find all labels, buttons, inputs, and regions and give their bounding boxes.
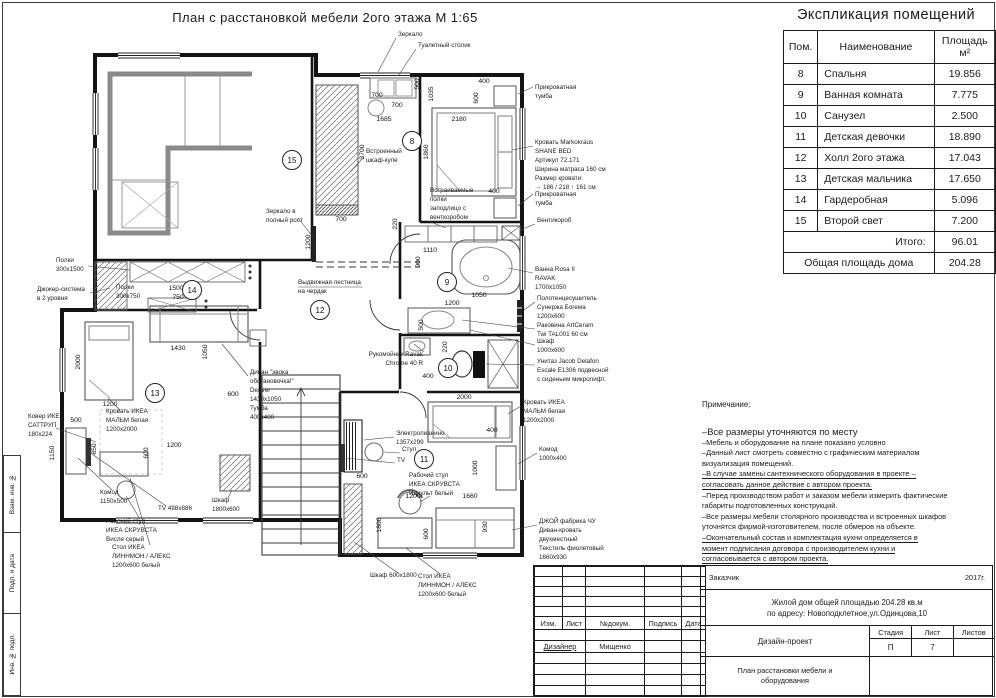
room15-sofa (110, 74, 252, 233)
object-description: Жилой дом общей площадью 204.28 кв.м по … (701, 590, 993, 626)
dimension-label: 700 (371, 92, 383, 99)
plan-label: Кровать ИКЕАМАЛЬМ белая1200x2000 (106, 408, 149, 433)
dimension-label: 400 (488, 188, 500, 195)
dimension-label: 1050 (202, 344, 209, 359)
dimension-label: 220 (442, 341, 449, 353)
void-balustrade (316, 262, 420, 267)
document-title: План расстановки мебели и оборудования (701, 657, 869, 695)
dimension-label: 900 (415, 256, 422, 268)
dimension-label: 700 (391, 102, 403, 109)
room-area: 18.890 (934, 127, 995, 148)
room-circle-number: 14 (188, 286, 197, 295)
room-area: 2.500 (934, 106, 995, 127)
plan-label: Комод1000x400 (539, 446, 567, 462)
girls-dresser (496, 446, 516, 490)
room-number-circles: 89101112131415 (146, 132, 458, 469)
title-block-right: Заказчик 2017г. Жилой дом общей площадью… (700, 566, 993, 695)
dimension-label: 400 (478, 78, 490, 85)
dimension-label: 1110 (423, 247, 437, 254)
plan-label: TV 498x886 (158, 505, 192, 512)
notes-block: Примечание: –Все размеры уточняются по м… (702, 400, 992, 565)
total-label: Общая площадь дома (784, 253, 935, 274)
strip-podp: Подп. и дата (3, 532, 21, 614)
plan-label: Шкаф1000x600 (537, 338, 565, 354)
room-area: 7.200 (934, 211, 995, 232)
dimension-label: 1200 (305, 234, 312, 249)
plan-label: Прикроватнаятумба (535, 191, 576, 207)
note-line: уточнятся фирмой-изготовителем, после об… (702, 522, 992, 533)
room-number: 15 (784, 211, 818, 232)
note-line: визуализация помещений. (702, 459, 992, 470)
subtotal-row: Итого:96.01 (784, 232, 996, 253)
room-circle-number: 11 (420, 455, 429, 464)
table-row: 15Второй свет7.200 (784, 211, 996, 232)
table-row: 14Гардеробная5.096 (784, 190, 996, 211)
table-row: 13Детская мальчика17.650 (784, 169, 996, 190)
plan-label: Комод1150x500 (100, 489, 128, 505)
plan-label: Зеркало вполный рост (266, 208, 303, 224)
room-circle-number: 9 (445, 278, 450, 287)
dimension-label: 3700 (359, 144, 366, 159)
dimension-label: 600 (423, 528, 430, 540)
left-margin-strip: Взам. инв. № Подп. и дата Инв. № подл. (3, 455, 21, 696)
room-name: Спальня (818, 64, 934, 85)
room-number: 13 (784, 169, 818, 190)
notes-heading: Примечание: (702, 400, 992, 411)
subtotal-label: Итого: (784, 232, 935, 253)
room-number: 8 (784, 64, 818, 85)
room-number: 12 (784, 148, 818, 169)
room-name: Санузел (818, 106, 934, 127)
plan-label: Встроенныйшкаф-купе (366, 147, 402, 164)
girls-wardrobe (344, 484, 362, 554)
dimension-label: 2000 (75, 354, 82, 369)
table-row: 8Спальня19.856 (784, 64, 996, 85)
piano-stool (365, 443, 383, 461)
plan-label: Раковина ArtCeramTwi TAL001 60 см (537, 322, 593, 338)
dimension-label: 600 (356, 473, 368, 480)
note-line: –Перед производством работ и заказом меб… (702, 491, 992, 502)
dimension-label: 500 (70, 417, 82, 424)
rail-dots (205, 265, 252, 309)
leader-line (364, 437, 394, 440)
table-row: 10Санузел2.500 (784, 106, 996, 127)
plan-label: Туалетный столик (418, 41, 471, 49)
note-line: согласовывается с автором проекта. (702, 554, 992, 565)
built-in-wardrobe (316, 85, 358, 215)
room-number: 9 (784, 85, 818, 106)
dimension-label: 1035 (428, 86, 435, 101)
project-type: Дизайн-проект (701, 626, 869, 657)
dimension-label: 930 (482, 521, 489, 533)
plan-label: Кровать MarkokrausSHANE BEDАртикул 72.17… (535, 139, 606, 191)
legend-header-row: Пом. Наименование Площадь м² (784, 31, 996, 64)
plan-label: Кровать ИКЕАМАЛЬМ белая1200x2000 (523, 399, 566, 424)
room-circle-number: 13 (151, 389, 160, 398)
room-circle-number: 15 (288, 156, 297, 165)
full-height-mirror (312, 226, 316, 262)
room-circle-number: 10 (444, 364, 453, 373)
dimension-label: 1860 (423, 144, 430, 159)
dimension-label: 1430 (170, 345, 185, 352)
room-circle-number: 8 (410, 137, 415, 146)
sheets-value (953, 639, 994, 657)
dimension-label: 220 (392, 218, 399, 230)
designer-name: Мищенко (586, 641, 645, 653)
boys-desk (100, 452, 148, 476)
leader-line (354, 542, 398, 573)
note-line: –Окончательный состав и комплектация кух… (702, 533, 992, 544)
room-number: 10 (784, 106, 818, 127)
leader-line (406, 548, 440, 574)
plan-label: Зеркало (398, 31, 423, 38)
plan-label: Ванна Rosa IIRAVAK1700x1050 (535, 266, 575, 291)
plan-label: ПолотенцесушительСунержа Богема1200x600 (537, 295, 597, 320)
dimension-label: 400 (486, 427, 498, 434)
vent-duct (502, 226, 520, 240)
room-area: 17.043 (934, 148, 995, 169)
room-legend-table: Пом. Наименование Площадь м² 8Спальня19.… (783, 30, 996, 274)
table-row: 9Ванная комната7.775 (784, 85, 996, 106)
leader-line (126, 496, 140, 519)
leader-line (222, 344, 248, 376)
leader-line (512, 525, 537, 530)
plan-label: Стол ИКЕАЛИННМОН / АЛЕКС1200x600 белый (418, 573, 477, 598)
note-line: –В случае замены сантехнического оборудо… (702, 469, 992, 480)
dimension-label: 500 (418, 319, 425, 331)
dimension-label: 1150 (49, 445, 56, 460)
boys-wardrobe (220, 455, 250, 491)
plan-label: Вентикороб (537, 216, 572, 224)
plan-label: Стул (402, 446, 417, 453)
table-row: 12Холл 2ого этажа17.043 (784, 148, 996, 169)
leader-line (486, 364, 535, 365)
wall-tv (341, 444, 345, 472)
leader-line (384, 452, 400, 453)
dimension-label: 1660 (462, 493, 477, 500)
col-podpis: Подпись (645, 617, 682, 630)
plan-label: ДЖОЙ фабрика ЧУДиван-кроватьдвухместныйТ… (539, 516, 604, 561)
sheet-header: Лист (911, 626, 952, 639)
stage-sheet-table: Стадия Лист Листов П 7 (869, 626, 993, 695)
dimension-label: 850 (91, 443, 98, 455)
plan-label: Шкаф1800x600 (212, 497, 240, 513)
doc-line2: оборудования (761, 676, 809, 686)
dimension-label: 1200 (444, 300, 459, 307)
leader-line (470, 330, 535, 345)
dimension-label: 1500 (168, 285, 183, 292)
leader-line (524, 302, 535, 310)
leader-line (462, 320, 535, 329)
project-cell: Дизайн-проект План расстановки мебели и … (701, 626, 869, 695)
sofa-bed (436, 508, 514, 548)
plan-label: Рукомойник RavakChrome 40 R (369, 350, 424, 367)
total-row: Общая площадь дома204.28 (784, 253, 996, 274)
dimension-label: 500 (414, 78, 421, 90)
drawing-sheet: План с расстановкой мебели 2ого этажа М … (0, 0, 996, 698)
room-area: 17.650 (934, 169, 995, 190)
designer-role: Дизайнер (535, 641, 586, 653)
leader-line (398, 49, 416, 76)
room-name: Детская девочки (818, 127, 934, 148)
dimension-label: 600 (143, 447, 150, 459)
dimension-label: 750 (172, 294, 184, 301)
sheet-value: 7 (911, 639, 952, 657)
boys-bed (85, 322, 133, 400)
note-line: –Мебель и оборудование на плане показано… (702, 438, 992, 449)
note-line: момент подписания договора с производите… (702, 544, 992, 555)
plan-label: Стол ИКЕАЛИННМОН / АЛЕКС1200x600 белый (112, 544, 171, 569)
plan-label: Встраиваемыеполкизаподлицо свенткоробом (430, 187, 474, 221)
year: 2017г. (965, 573, 985, 582)
plan-label: Унитаз Jacob DelafonEscale E1306 подвесн… (537, 358, 609, 383)
plan-label: Полки300x1500 (56, 257, 84, 273)
dimension-label: 1800 (376, 517, 383, 532)
plan-label: Джокер-системав 2 уровня (37, 286, 85, 302)
subtotal-value: 96.01 (934, 232, 995, 253)
strip-inv: Инв. № подл. (3, 613, 21, 696)
col-list: Лист (563, 617, 586, 630)
room-circle-number: 12 (316, 306, 325, 315)
bedroom-bed (432, 108, 516, 196)
room-name: Ванная комната (818, 85, 934, 106)
doc-line1: План расстановки мебели и (738, 666, 833, 676)
room-area: 7.775 (934, 85, 995, 106)
room-area: 19.856 (934, 64, 995, 85)
plan-label: Диван "эвокаобстановочка!"Denver1430x105… (250, 369, 294, 421)
leader-line (378, 38, 396, 72)
dimension-label: 1200 (166, 442, 181, 449)
room-name: Гардеробная (818, 190, 934, 211)
col-docnum: №докум. (586, 617, 645, 630)
room-number: 11 (784, 127, 818, 148)
col-num: Пом. (784, 31, 818, 64)
piano (344, 420, 362, 472)
bathtub (452, 240, 520, 294)
note-line: –Данный лист смотреть совместно с графич… (702, 448, 992, 459)
dimension-label: 600 (473, 92, 480, 104)
col-area: Площадь м² (934, 31, 995, 64)
note-line: –Все размеры уточняются по месту (702, 425, 992, 438)
legend-title: Экспликация помещений (780, 7, 992, 23)
plan-label: Ковер ИКЕАСАТТРУП180x224 (28, 413, 65, 438)
room-number: 14 (784, 190, 818, 211)
title-block: Изм. Лист №докум. Подпись Дата Дизайнер … (533, 565, 993, 696)
customer-row: Заказчик 2017г. (701, 566, 993, 590)
stage-value: П (870, 639, 911, 657)
customer-label: Заказчик (709, 573, 739, 582)
dimension-label: 1200 (102, 401, 117, 408)
dimension-label: 400 (422, 373, 434, 380)
room-name: Детская мальчика (818, 169, 934, 190)
dimension-label: 1000 (472, 460, 479, 475)
room-name: Второй свет (818, 211, 934, 232)
col-name: Наименование (818, 31, 934, 64)
note-line: габариты подготовленных конструкций. (702, 501, 992, 512)
dimension-label: 600 (227, 391, 239, 398)
plan-label: TV (397, 457, 406, 464)
object-line1: Жилой дом общей площадью 204.28 кв.м (701, 597, 993, 608)
dimension-label: 1050 (471, 292, 486, 299)
note-line: согласовать данное действие с автором пр… (702, 480, 992, 491)
sheets-header: Листов (953, 626, 994, 639)
revision-grid: Изм. Лист №докум. Подпись Дата Дизайнер … (534, 566, 706, 697)
dimension-label: 2000 (456, 394, 471, 401)
plan-label: Шкаф 600x1800 (370, 572, 417, 579)
col-izm: Изм. (535, 617, 563, 630)
dimension-label: 700 (335, 216, 347, 223)
room-name: Холл 2ого этажа (818, 148, 934, 169)
plan-label: Прикроватнаятумба (535, 84, 576, 100)
table-row: 11Детская девочки18.890 (784, 127, 996, 148)
room-area: 5.096 (934, 190, 995, 211)
stage-header: Стадия (870, 626, 911, 639)
object-line2: по адресу: Новоподклетное,ул.Одинцова,10 (701, 608, 993, 619)
dimension-label: 1685 (376, 116, 391, 123)
plan-label: Рабочий стулИКЕА СКРУВСТАИдхульт белый (409, 471, 461, 497)
note-line: –Все размеры мебели столярного производс… (702, 512, 992, 523)
strip-vzam: Взам. инв. № (3, 455, 21, 533)
total-value: 204.28 (934, 253, 995, 274)
dimension-label: 2180 (451, 116, 466, 123)
